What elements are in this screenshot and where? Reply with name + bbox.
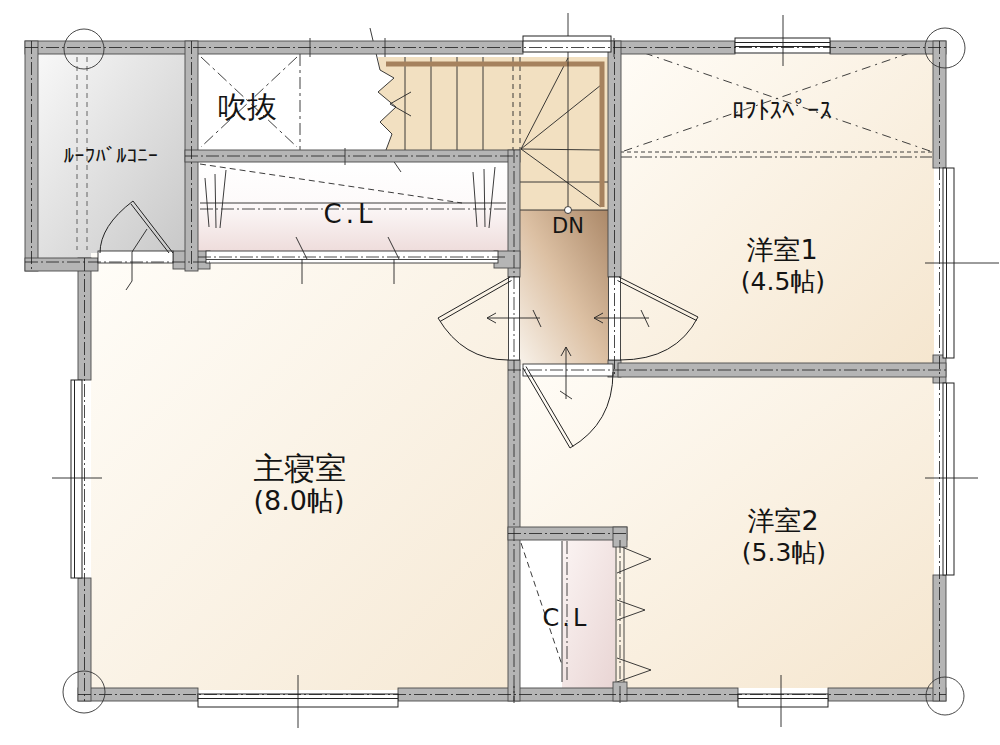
floorplan-canvas: ﾙｰﾌﾊﾞﾙｺﾆｰ 吹抜 ﾛﾌﾄｽﾍﾟｰｽ 洋室1 (4.5帖) 主寝室 (8.… xyxy=(0,0,1000,745)
label-room2-name: 洋室2 xyxy=(747,505,818,536)
label-void: 吹抜 xyxy=(217,89,277,124)
label-master-name: 主寝室 xyxy=(254,450,347,486)
threshold-balcony-door xyxy=(98,251,173,263)
label-stairs-down: DN xyxy=(552,214,584,238)
wall-left xyxy=(78,258,91,380)
label-closet-top: C.L xyxy=(324,199,377,229)
stairs-guide-end xyxy=(565,207,572,214)
label-room2-size: (5.3帖) xyxy=(742,538,826,567)
label-room1-size: (4.5帖) xyxy=(741,267,825,296)
window-stairs-top xyxy=(523,36,611,52)
label-room1-name: 洋室1 xyxy=(746,234,817,265)
label-loft-space: ﾛﾌﾄｽﾍﾟｰｽ xyxy=(732,96,832,125)
wall-balcony-bottom xyxy=(25,258,98,271)
window-room2-bottom xyxy=(738,694,828,707)
window-room2-right xyxy=(943,383,954,575)
window-loft-top xyxy=(735,38,830,53)
window-master-left xyxy=(71,380,82,578)
floorplan-drawing: ﾙｰﾌﾊﾞﾙｺﾆｰ 吹抜 ﾛﾌﾄｽﾍﾟｰｽ 洋室1 (4.5帖) 主寝室 (8.… xyxy=(0,0,1000,745)
label-roof-balcony: ﾙｰﾌﾊﾞﾙｺﾆｰ xyxy=(64,144,159,168)
label-master-size: (8.0帖) xyxy=(253,485,344,516)
label-closet-bottom: C.L xyxy=(543,604,590,632)
